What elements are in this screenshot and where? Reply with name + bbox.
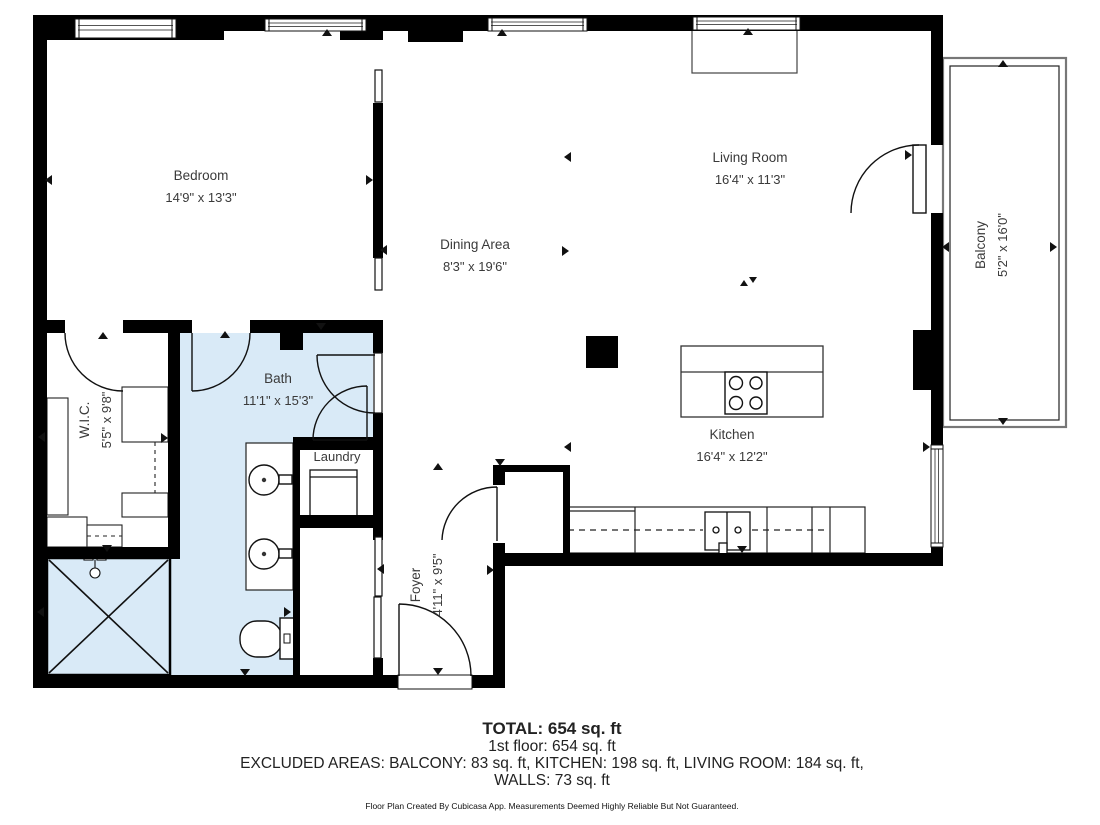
washer-icon <box>310 470 357 516</box>
bedroom-window-1 <box>75 19 176 38</box>
tv-console <box>692 30 797 73</box>
dining-window <box>488 18 587 31</box>
bath-label: Bath 11'1" x 15'3" <box>243 368 313 412</box>
kitchen-dims: 16'4" x 12'2" <box>696 446 767 468</box>
foyer-label: Foyer 4'11" x 9'5" <box>405 553 449 616</box>
foyer-dims: 4'11" x 9'5" <box>427 553 449 616</box>
stove-icon <box>725 372 767 414</box>
kitchen-window <box>931 445 943 547</box>
kitchen-label: Kitchen 16'4" x 12'2" <box>696 424 767 468</box>
bath-dims: 11'1" x 15'3" <box>243 390 313 412</box>
floor-plan-page: Bedroom 14'9" x 13'3" Dining Area 8'3" x… <box>0 0 1100 825</box>
bedroom-dims: 14'9" x 13'3" <box>165 187 236 209</box>
closet-sliding-panel-2 <box>374 597 381 658</box>
dining-name: Dining Area <box>440 234 510 256</box>
dining-area-label: Dining Area 8'3" x 19'6" <box>440 234 510 278</box>
dining-dims: 8'3" x 19'6" <box>440 256 510 278</box>
bath-hall-door-leaf <box>374 353 382 413</box>
bedroom-window-2 <box>265 19 366 31</box>
wic-door-swing <box>65 333 123 391</box>
laundry-name: Laundry <box>314 446 361 468</box>
bedroom-label: Bedroom 14'9" x 13'3" <box>165 165 236 209</box>
living-dims: 16'4" x 11'3" <box>712 169 787 191</box>
entry-door-threshold <box>398 675 472 689</box>
area-summary: TOTAL: 654 sq. ft 1st floor: 654 sq. ft … <box>0 720 1100 811</box>
laundry-label: Laundry <box>314 446 361 468</box>
bedroom-name: Bedroom <box>165 165 236 187</box>
toilet-icon <box>240 618 294 659</box>
balcony-dims: 5'2" x 16'0" <box>992 213 1014 277</box>
bedroom-sliding-panel-2 <box>375 258 382 290</box>
balcony-name: Balcony <box>970 213 992 277</box>
disclaimer-text: Floor Plan Created By Cubicasa App. Meas… <box>0 801 1100 811</box>
walls-area-text: WALLS: 73 sq. ft <box>0 772 1100 789</box>
total-area-text: TOTAL: 654 sq. ft <box>0 720 1100 737</box>
bedroom-sliding-panel-1 <box>375 70 382 102</box>
living-name: Living Room <box>712 147 787 169</box>
foyer-closet-door-swing <box>442 487 497 541</box>
balcony-door-leaf <box>913 145 926 213</box>
bath-name: Bath <box>243 368 313 390</box>
kitchen-name: Kitchen <box>696 424 767 446</box>
door-leaves <box>374 70 926 689</box>
wic-name: W.I.C. <box>74 392 96 449</box>
excluded-areas-text: EXCLUDED AREAS: BALCONY: 83 sq. ft, KITC… <box>0 755 1100 772</box>
foyer-name: Foyer <box>405 553 427 616</box>
balcony-label: Balcony 5'2" x 16'0" <box>970 213 1014 277</box>
floor-area-text: 1st floor: 654 sq. ft <box>0 738 1100 755</box>
wic-dims: 5'5" x 9'8" <box>96 392 118 449</box>
wic-label: W.I.C. 5'5" x 9'8" <box>74 392 118 449</box>
floor-plan-drawing <box>0 0 1100 825</box>
living-room-label: Living Room 16'4" x 11'3" <box>712 147 787 191</box>
living-room-window <box>693 17 800 30</box>
